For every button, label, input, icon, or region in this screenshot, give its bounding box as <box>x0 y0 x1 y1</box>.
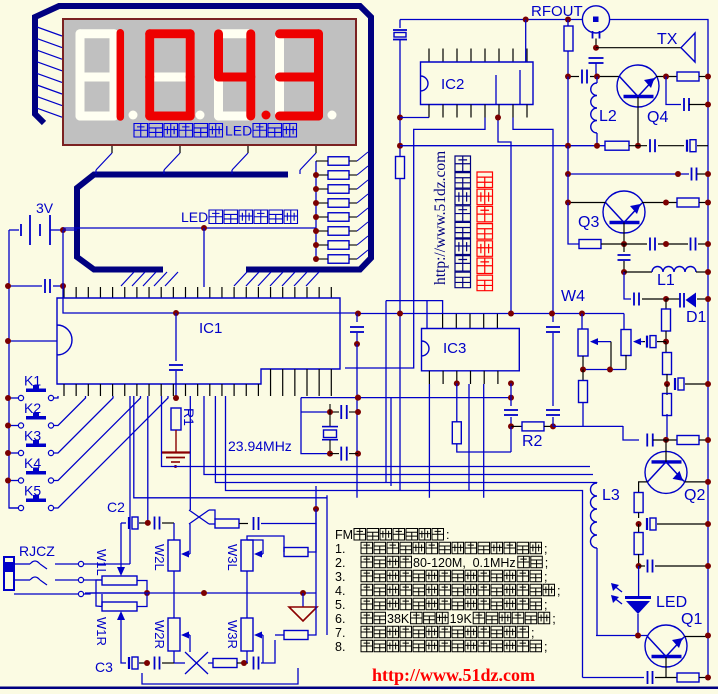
svg-text:LED: LED <box>225 123 252 139</box>
svg-text:4.: 4. <box>335 584 345 598</box>
svg-text::: : <box>446 528 449 542</box>
svg-text:IC2: IC2 <box>441 76 464 93</box>
svg-text:LED: LED <box>656 594 687 611</box>
svg-text:19K: 19K <box>450 612 473 626</box>
svg-text:Q4: Q4 <box>647 109 668 126</box>
svg-text:W1L: W1L <box>94 549 109 576</box>
svg-text:http://www.51dz.com: http://www.51dz.com <box>432 151 449 285</box>
svg-text:R1: R1 <box>181 408 197 426</box>
svg-text:3.: 3. <box>335 570 345 584</box>
svg-text:;: ; <box>552 612 555 626</box>
svg-text:38K: 38K <box>387 612 410 626</box>
svg-text:;: ; <box>531 626 534 640</box>
svg-text:3V: 3V <box>36 200 54 216</box>
svg-text:W3R: W3R <box>225 620 240 649</box>
svg-text:W2R: W2R <box>152 620 167 649</box>
svg-text:FM: FM <box>335 528 353 542</box>
svg-text:Q3: Q3 <box>578 214 599 231</box>
svg-text:L2: L2 <box>599 108 617 125</box>
svg-text:L3: L3 <box>602 487 620 504</box>
svg-text:;: ; <box>544 570 547 584</box>
svg-text:;: ; <box>544 598 547 612</box>
svg-text:D1: D1 <box>686 309 707 326</box>
svg-text:IC3: IC3 <box>443 340 466 357</box>
svg-text:L1: L1 <box>657 272 675 289</box>
svg-text:W3L: W3L <box>225 544 240 571</box>
svg-text:23.94MHz: 23.94MHz <box>228 438 292 454</box>
svg-text:W1R: W1R <box>94 617 109 646</box>
svg-text:C2: C2 <box>107 499 125 515</box>
svg-text:RFOUT: RFOUT <box>531 3 583 20</box>
svg-text:;: ; <box>544 542 547 556</box>
svg-text:;: ; <box>545 556 548 570</box>
svg-text:8.: 8. <box>335 640 345 654</box>
svg-text:;: ; <box>544 640 547 654</box>
svg-text:C3: C3 <box>95 659 113 675</box>
svg-text:http://www.51dz.com: http://www.51dz.com <box>372 665 535 685</box>
svg-text:IC1: IC1 <box>199 320 222 337</box>
svg-text:1.: 1. <box>335 542 345 556</box>
svg-text:W4: W4 <box>561 288 585 305</box>
svg-text:Q2: Q2 <box>684 487 705 504</box>
svg-text:Q1: Q1 <box>681 611 702 628</box>
svg-text:;: ; <box>557 584 560 598</box>
svg-text:LED: LED <box>181 209 208 225</box>
svg-text:TX: TX <box>657 31 678 48</box>
svg-text:80-120M,: 80-120M, <box>413 556 466 570</box>
svg-text:5.: 5. <box>335 598 345 612</box>
svg-text:R2: R2 <box>522 433 543 450</box>
svg-text:7.: 7. <box>335 626 345 640</box>
svg-text:0.1MHz: 0.1MHz <box>473 556 516 570</box>
svg-text:6.: 6. <box>335 612 345 626</box>
svg-text:2.: 2. <box>335 556 345 570</box>
svg-text:RJCZ: RJCZ <box>19 543 55 559</box>
svg-text:W2L: W2L <box>152 544 167 571</box>
